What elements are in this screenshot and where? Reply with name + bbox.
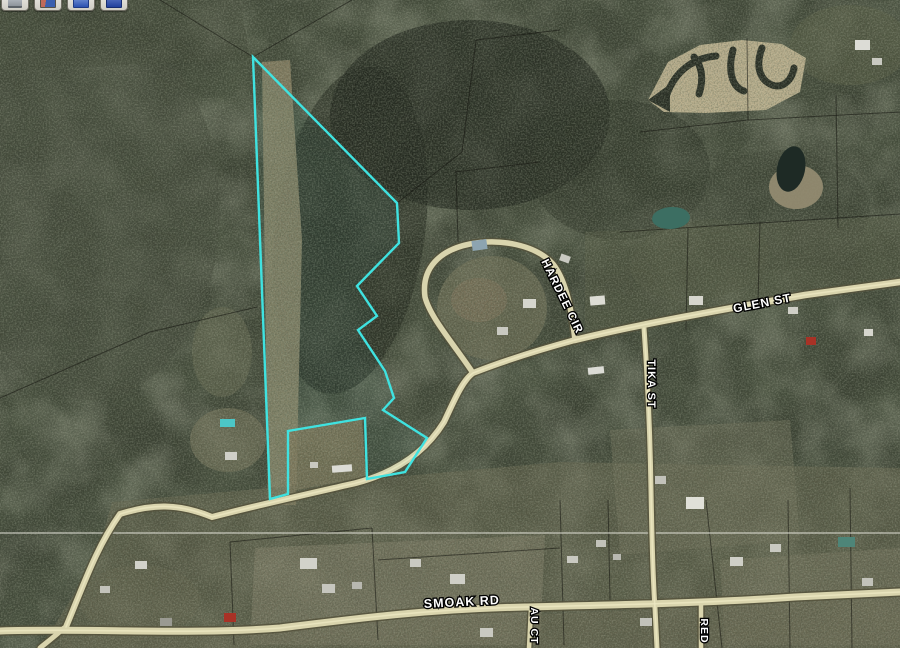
email-button[interactable] — [67, 0, 95, 11]
printer-icon — [8, 0, 22, 8]
building — [596, 540, 606, 547]
building — [352, 582, 362, 589]
building — [224, 613, 236, 622]
save-button[interactable] — [100, 0, 128, 11]
building — [480, 628, 493, 637]
building — [332, 464, 352, 472]
building — [225, 452, 237, 460]
building — [523, 299, 536, 308]
building — [730, 557, 743, 566]
building — [862, 578, 873, 586]
road-label-au-ct: AU CT — [528, 607, 540, 644]
building — [160, 618, 172, 626]
building — [806, 337, 816, 345]
satellite-map[interactable]: SMOAK RDGLEN STHARDEE CIRTIKA STAU CTRED — [0, 0, 900, 648]
toolbar — [1, 0, 128, 11]
save-icon — [106, 0, 122, 8]
building — [613, 554, 621, 560]
building — [322, 584, 335, 593]
building — [135, 561, 147, 569]
building — [590, 295, 606, 305]
building — [567, 556, 578, 563]
building — [770, 544, 781, 552]
building — [838, 537, 855, 547]
building — [686, 497, 704, 509]
email-icon — [73, 0, 89, 8]
building — [655, 476, 666, 484]
building — [100, 586, 110, 593]
map-viewport[interactable]: SMOAK RDGLEN STHARDEE CIRTIKA STAU CTRED — [0, 0, 900, 648]
road-label-tika-st: TIKA ST — [645, 359, 657, 408]
building — [640, 618, 652, 626]
image-icon — [40, 0, 56, 8]
building — [220, 419, 235, 427]
building — [471, 239, 487, 251]
building — [855, 40, 870, 50]
terrain-layer — [0, 0, 900, 648]
print-button[interactable] — [1, 0, 29, 11]
building — [788, 307, 798, 314]
preview-button[interactable] — [34, 0, 62, 11]
building — [689, 296, 703, 305]
building — [450, 574, 465, 584]
road-label-red: RED — [698, 618, 710, 643]
building — [497, 327, 508, 335]
building — [300, 558, 317, 569]
building — [310, 462, 318, 468]
building — [410, 559, 421, 567]
building — [872, 58, 882, 65]
building — [864, 329, 873, 336]
